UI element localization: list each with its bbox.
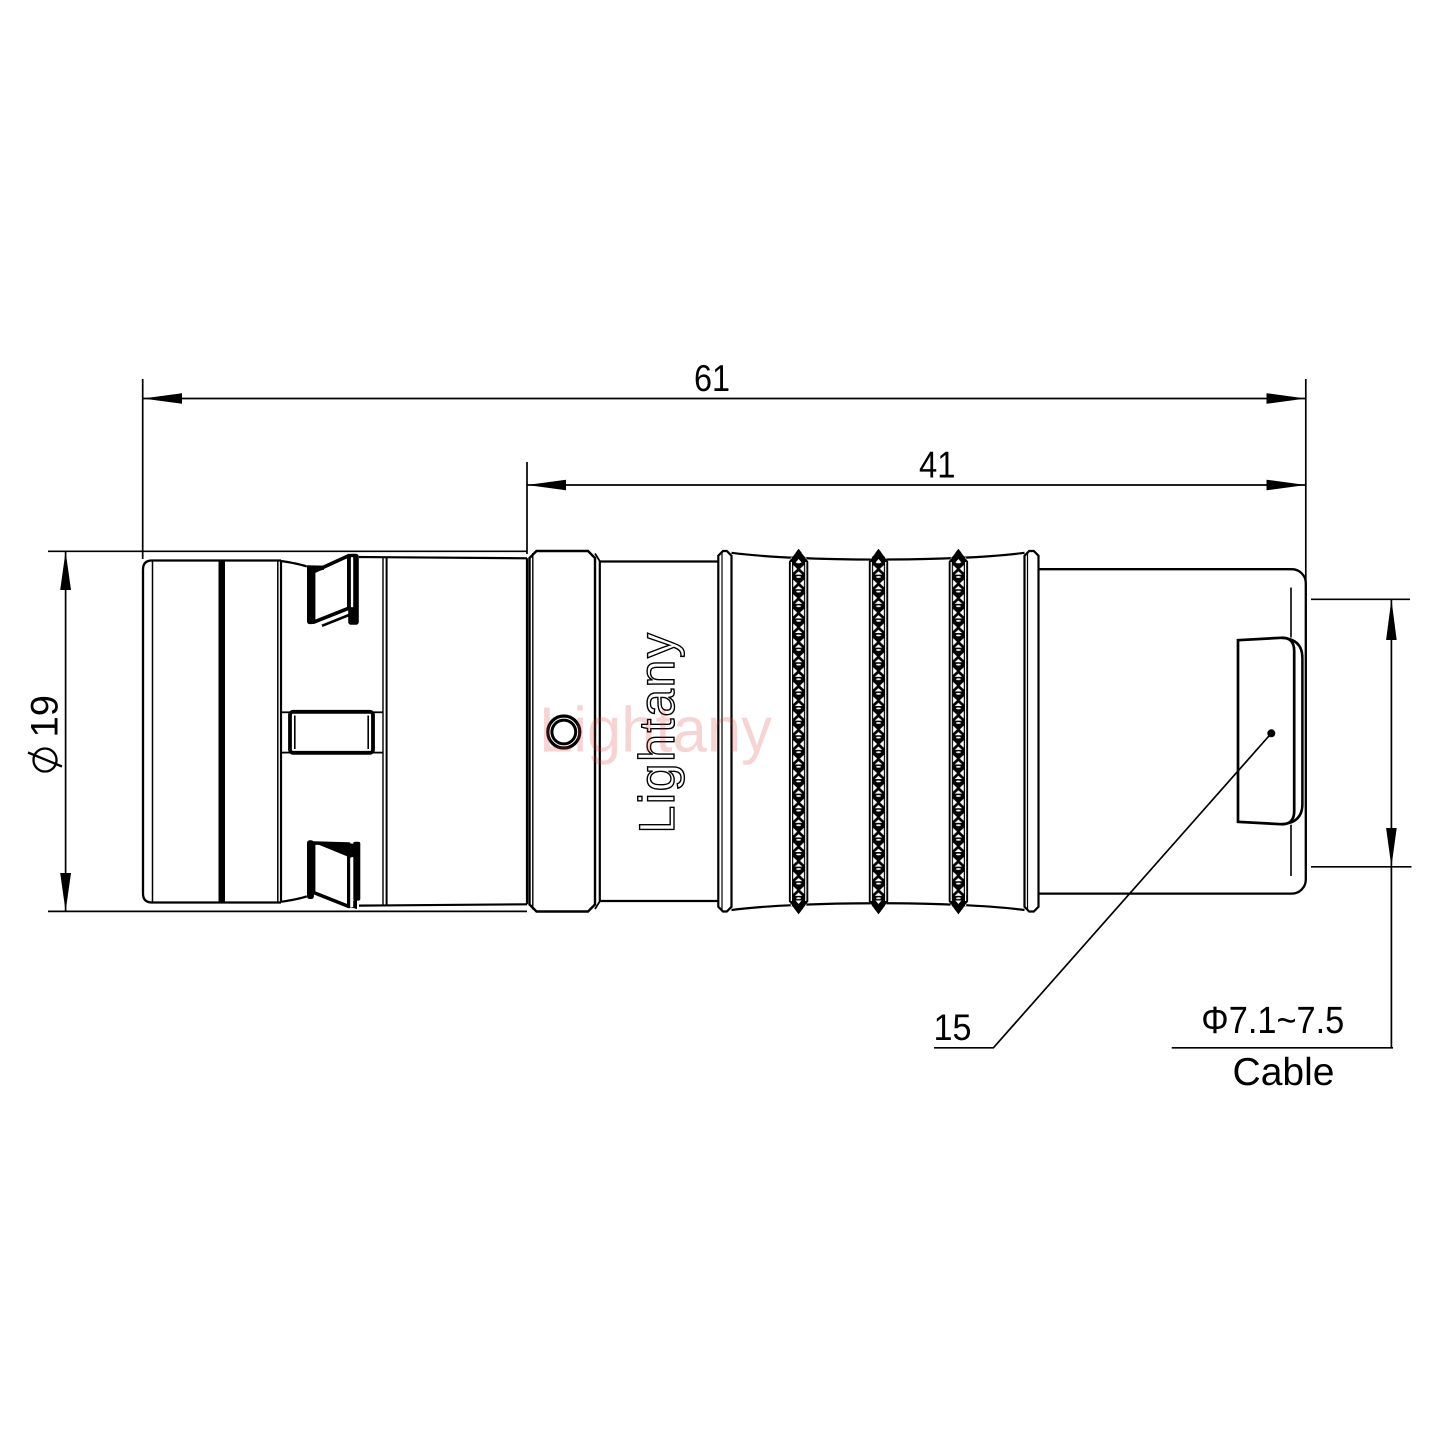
svg-text:15: 15 <box>934 1007 972 1048</box>
svg-text:19: 19 <box>24 695 67 738</box>
svg-text:41: 41 <box>919 444 956 486</box>
svg-text:Cable: Cable <box>1233 1051 1335 1094</box>
svg-text:61: 61 <box>694 357 730 399</box>
svg-text:Φ7.1~7.5: Φ7.1~7.5 <box>1201 1000 1344 1042</box>
svg-text:Lightany: Lightany <box>539 694 772 766</box>
